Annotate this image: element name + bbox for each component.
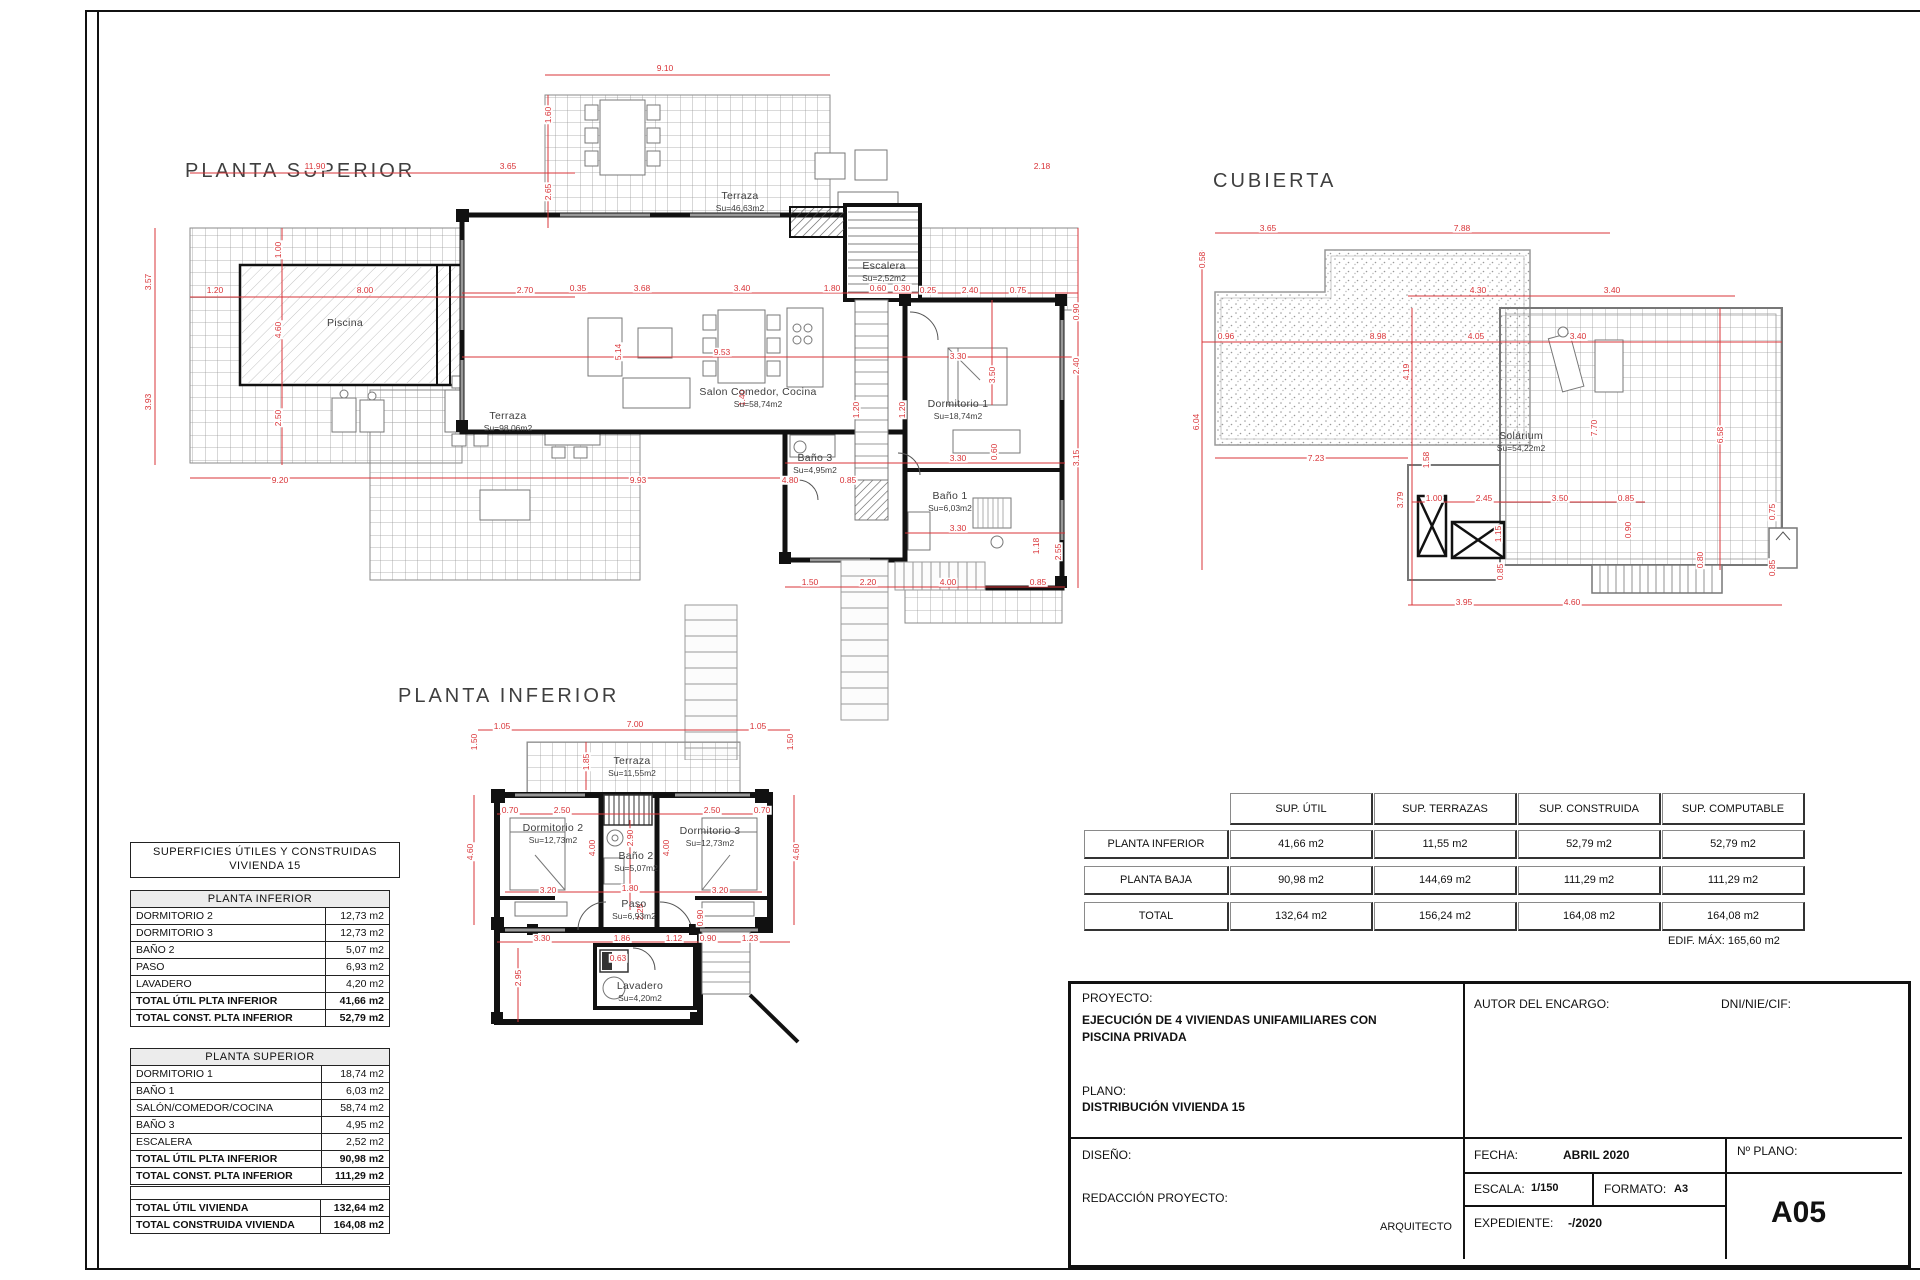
room-label: TerrazaSu=46,63m2 (716, 186, 764, 214)
dimension-label: 6.04 (1192, 413, 1201, 432)
dimension-label: 6.58 (1716, 426, 1725, 445)
sheet-border-left-inner (97, 10, 99, 1270)
dimension-label: 4.60 (1563, 598, 1582, 607)
summary-row-label: TOTAL (1084, 902, 1229, 931)
table-row: DORMITORIO 118,74 m2 (131, 1066, 390, 1083)
room-label: Baño 3Su=4,95m2 (793, 448, 837, 476)
table-row: SALÓN/COMEDOR/COCINA58,74 m2 (131, 1100, 390, 1117)
summary-cell: 164,08 m2 (1662, 902, 1805, 931)
dimension-label: 3.20 (539, 886, 558, 895)
dimension-label: 2.70 (516, 286, 535, 295)
summary-col-header: SUP. COMPUTABLE (1662, 793, 1805, 825)
table-row-total: TOTAL CONSTRUIDA VIVIENDA164,08 m2 (131, 1217, 390, 1234)
summary-note: EDIF. MÁX: 165,60 m2 (1668, 935, 1780, 947)
dimension-label: 1.23 (741, 934, 760, 943)
dimension-label: 3.50 (988, 366, 997, 385)
dimension-label: 0.90 (696, 909, 705, 928)
table-row: DORMITORIO 212,73 m2 (131, 908, 390, 925)
dimension-label: 0.70 (501, 806, 520, 815)
room-label: Dormitorio 3Su=12,73m2 (680, 821, 741, 849)
title-block: PROYECTO: EJECUCIÓN DE 4 VIVIENDAS UNIFA… (1068, 981, 1911, 1268)
dimension-label: 3.30 (533, 934, 552, 943)
summary-cell: 111,29 m2 (1662, 866, 1805, 895)
dimension-label: 7.70 (1590, 419, 1599, 438)
summary-col-header: SUP. CONSTRUIDA (1518, 793, 1661, 825)
dimension-label: 4.30 (1469, 286, 1488, 295)
plano-label: PLANO: (1082, 1084, 1126, 1098)
dimension-label: 0.96 (1217, 332, 1236, 341)
dimension-label: 2.20 (859, 578, 878, 587)
dimension-label: 1.20 (852, 401, 861, 420)
table-planta-superior: PLANTA SUPERIOR DORMITORIO 118,74 m2 BAÑ… (130, 1048, 390, 1185)
summary-cell: 41,66 m2 (1230, 830, 1373, 859)
summary-cell: 11,55 m2 (1374, 830, 1517, 859)
dimension-label: 3.95 (1455, 598, 1474, 607)
dimension-label: 0.75 (1768, 503, 1777, 522)
arquitecto-label: ARQUITECTO (1380, 1221, 1452, 1233)
dimension-label: 1.60 (544, 106, 553, 125)
dimension-label: 3.30 (949, 352, 968, 361)
summary-cell: 52,79 m2 (1518, 830, 1661, 859)
dimension-label: 1.05 (493, 722, 512, 731)
dimension-label: 2.95 (514, 969, 523, 988)
dimension-label: 1.50 (470, 733, 479, 752)
table-row: LAVADERO4,20 m2 (131, 976, 390, 993)
room-label: SoláriumSu=54,22m2 (1497, 426, 1545, 454)
table-row-total: TOTAL ÚTIL PLTA INFERIOR41,66 m2 (131, 993, 390, 1010)
summary-cell: 164,08 m2 (1518, 902, 1661, 931)
dimension-label: 0.85 (1029, 578, 1048, 587)
table-row-empty (131, 1187, 390, 1200)
plan-planta-inferior: PLANTA INFERIOR (390, 680, 830, 1120)
summary-row-label: PLANTA BAJA (1084, 866, 1229, 895)
dimension-label: 3.79 (1396, 491, 1405, 510)
dimension-label: 3.50 (1551, 494, 1570, 503)
room-label: TerrazaSu=11,55m2 (608, 751, 656, 779)
table-planta-inferior: PLANTA INFERIOR DORMITORIO 212,73 m2 DOR… (130, 890, 390, 1027)
dimension-label: 9.93 (629, 476, 648, 485)
dimension-label: 2.65 (544, 183, 553, 202)
dimension-label: 4.60 (466, 843, 475, 862)
dimension-label: 1.50 (786, 733, 795, 752)
plan-inferior-drawing (390, 680, 830, 1120)
room-label: PasoSu=6,93m2 (612, 894, 656, 922)
dimension-label: 8.00 (356, 286, 375, 295)
table-row: PASO6,93 m2 (131, 959, 390, 976)
table-row: BAÑO 25,07 m2 (131, 942, 390, 959)
num-plano-label: Nº PLANO: (1737, 1144, 1797, 1158)
dimension-label: 2.45 (1475, 494, 1494, 503)
dimension-label: 1.85 (582, 753, 591, 772)
summary-row-label: PLANTA INFERIOR (1084, 830, 1229, 859)
summary-cell: 111,29 m2 (1518, 866, 1661, 895)
table-row: BAÑO 34,95 m2 (131, 1117, 390, 1134)
redaccion-label: REDACCIÓN PROYECTO: (1082, 1191, 1228, 1205)
escala-label: ESCALA: (1474, 1182, 1525, 1196)
summary-cell: 90,98 m2 (1230, 866, 1373, 895)
dimension-label: 1.00 (274, 241, 283, 260)
dimension-label: 4.80 (781, 476, 800, 485)
dimension-label: 0.35 (569, 284, 588, 293)
dimension-label: 0.70 (753, 806, 772, 815)
table-row-total: TOTAL CONST. PLTA INFERIOR111,29 m2 (131, 1168, 390, 1185)
room-label: Dormitorio 2Su=12,73m2 (523, 818, 584, 846)
summary-cell: 144,69 m2 (1374, 866, 1517, 895)
dimension-label: 2.18 (1033, 162, 1052, 171)
dimension-label: 2.55 (1054, 543, 1063, 562)
table-row-total: TOTAL ÚTIL PLTA INFERIOR90,98 m2 (131, 1151, 390, 1168)
expediente-label: EXPEDIENTE: (1474, 1216, 1553, 1230)
room-label: Salon Comedor, CocinaSu=58,74m2 (699, 382, 816, 410)
dimension-label: 4.60 (274, 321, 283, 340)
room-label: TerrazaSu=98,06m2 (484, 406, 532, 434)
proyecto-label: PROYECTO: (1082, 991, 1152, 1005)
dimension-label: 0.60 (869, 284, 888, 293)
room-label: Baño 2Su=5,07m2 (614, 846, 658, 874)
dimension-label: 1.00 (1425, 494, 1444, 503)
dimension-label: 3.40 (733, 284, 752, 293)
expediente-value: -/2020 (1568, 1216, 1602, 1230)
dimension-label: 2.90 (626, 829, 635, 848)
formato-value: A3 (1674, 1183, 1688, 1195)
summary-cell: 52,79 m2 (1662, 830, 1805, 859)
summary-cell: 156,24 m2 (1374, 902, 1517, 931)
sheet-border-left-outer (85, 10, 87, 1270)
summary-col-header: SUP. ÚTIL (1230, 793, 1373, 825)
dimension-label: 0.85 (839, 476, 858, 485)
dimension-label: 0.25 (919, 286, 938, 295)
table-row-total: TOTAL CONST. PLTA INFERIOR52,79 m2 (131, 1010, 390, 1027)
dimension-label: 2.40 (1072, 357, 1081, 376)
dimension-label: 8.98 (1369, 332, 1388, 341)
table-row: BAÑO 16,03 m2 (131, 1083, 390, 1100)
dimension-label: 3.30 (949, 454, 968, 463)
diseno-label: DISEÑO: (1082, 1148, 1131, 1162)
plano-value: DISTRIBUCIÓN VIVIENDA 15 (1082, 1100, 1245, 1114)
dimension-label: 3.65 (499, 162, 518, 171)
summary-cell: 132,64 m2 (1230, 902, 1373, 931)
dimension-label: 0.80 (1696, 551, 1705, 570)
dimension-label: 3.57 (144, 273, 153, 292)
dimension-label: 9.53 (713, 348, 732, 357)
room-label: Baño 1Su=6,03m2 (928, 486, 972, 514)
dimension-label: 4.60 (792, 843, 801, 862)
dimension-label: 0.75 (1009, 286, 1028, 295)
dimension-label: 4.19 (1402, 363, 1411, 382)
room-label: Piscina (327, 313, 363, 331)
num-plano-value: A05 (1771, 1196, 1826, 1230)
table-row: DORMITORIO 312,73 m2 (131, 925, 390, 942)
sheet-border-top (85, 10, 1920, 12)
dimension-label: 1.20 (898, 401, 907, 420)
dimension-label: 2.50 (553, 806, 572, 815)
dimension-label: 0.90 (699, 934, 718, 943)
formato-label: FORMATO: (1604, 1182, 1666, 1196)
dimension-label: 1.05 (749, 722, 768, 731)
dimension-label: 1.18 (1032, 537, 1041, 556)
plan-planta-superior: PLANTA SUPERIOR (130, 60, 1110, 760)
dimension-label: 1.50 (801, 578, 820, 587)
dimension-label: 1.20 (206, 286, 225, 295)
dimension-label: 0.63 (609, 954, 628, 963)
dimension-label: 1.80 (823, 284, 842, 293)
proyecto-value-line1: EJECUCIÓN DE 4 VIVIENDAS UNIFAMILIARES C… (1082, 1013, 1377, 1027)
dimension-label: 4.00 (588, 839, 597, 858)
areas-table-header-line2: VIVIENDA 15 (131, 860, 399, 874)
fecha-label: FECHA: (1474, 1148, 1518, 1162)
dimension-label: 7.88 (1453, 224, 1472, 233)
dimension-label: 3.40 (1569, 332, 1588, 341)
fecha-value: ABRIL 2020 (1563, 1148, 1629, 1162)
plan-cubierta: CUBIERTA (1180, 140, 1880, 680)
dni-label: DNI/NIE/CIF: (1721, 997, 1791, 1011)
dimension-label: 0.58 (1198, 251, 1207, 270)
dimension-label: 1.80 (621, 884, 640, 893)
dimension-label: 9.20 (271, 476, 290, 485)
summary-col-header: SUP. TERRAZAS (1374, 793, 1517, 825)
dimension-label: 3.15 (1072, 449, 1081, 468)
areas-table-header-line1: SUPERFICIES ÚTILES Y CONSTRUIDAS (131, 846, 399, 860)
table-row: ESCALERA2,52 m2 (131, 1134, 390, 1151)
dimension-label: 3.68 (633, 284, 652, 293)
dimension-label: 3.30 (949, 524, 968, 533)
table-totales-vivienda: TOTAL ÚTIL VIVIENDA132,64 m2 TOTAL CONST… (130, 1186, 390, 1234)
dimension-label: 0.60 (990, 443, 999, 462)
proyecto-value-line2: PISCINA PRIVADA (1082, 1030, 1187, 1044)
room-label: LavaderoSu=4,20m2 (617, 976, 663, 1004)
dimension-label: 3.40 (1603, 286, 1622, 295)
dimension-label: 1.86 (613, 934, 632, 943)
dimension-label: 3.20 (711, 886, 730, 895)
dimension-label: 4.00 (939, 578, 958, 587)
dimension-label: 1.12 (665, 934, 684, 943)
dimension-label: 11.90 (304, 162, 327, 171)
dimension-label: 9.10 (656, 64, 675, 73)
sheet-border-bottom (85, 1268, 1920, 1270)
dimension-label: 7.23 (1307, 454, 1326, 463)
autor-label: AUTOR DEL ENCARGO: (1474, 997, 1609, 1011)
room-label: EscaleraSu=2,52m2 (862, 256, 906, 284)
dimension-label: 0.90 (1624, 521, 1633, 540)
dimension-label: 7.00 (626, 720, 645, 729)
dimension-label: 0.85 (1617, 494, 1636, 503)
dimension-label: 3.93 (144, 393, 153, 412)
plan-cubierta-drawing (1180, 140, 1880, 680)
dimension-label: 4.05 (1467, 332, 1486, 341)
dimension-label: 1.58 (1422, 451, 1431, 470)
dimension-label: 3.65 (1259, 224, 1278, 233)
table-title: PLANTA SUPERIOR (131, 1049, 390, 1066)
room-label: Dormitorio 1Su=18,74m2 (928, 394, 989, 422)
table-row-total: TOTAL ÚTIL VIVIENDA132,64 m2 (131, 1200, 390, 1217)
dimension-label: 4.00 (662, 839, 671, 858)
dimension-label: 0.85 (1768, 559, 1777, 578)
dimension-label: 0.30 (893, 284, 912, 293)
table-title: PLANTA INFERIOR (131, 891, 390, 908)
dimension-label: 2.50 (274, 409, 283, 428)
dimension-label: 2.40 (961, 286, 980, 295)
areas-table-header: SUPERFICIES ÚTILES Y CONSTRUIDAS VIVIEND… (130, 842, 400, 878)
dimension-label: 0.85 (1496, 563, 1505, 582)
escala-value: 1/150 (1531, 1182, 1559, 1194)
dimension-label: 5.14 (614, 343, 623, 362)
dimension-label: 2.50 (703, 806, 722, 815)
dimension-label: 1.15 (1494, 525, 1503, 544)
dimension-label: 0.90 (1072, 303, 1081, 322)
